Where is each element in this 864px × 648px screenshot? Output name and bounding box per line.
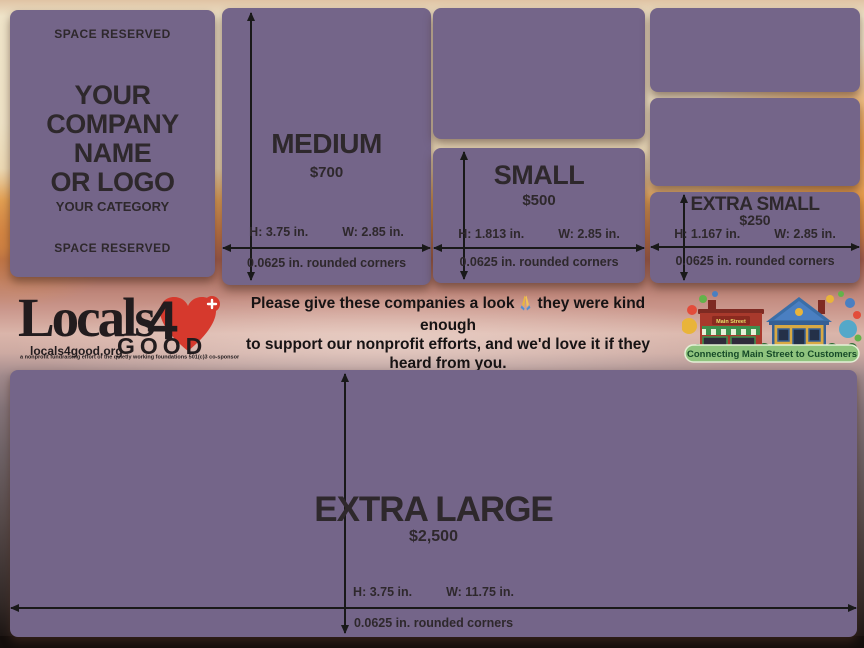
small-dimensions-row: H: 1.813 in. W: 2.85 in. (433, 227, 645, 241)
small-blank-ad-slot (433, 8, 645, 139)
main-street-illustration: Main Street Connecting Ma (682, 288, 862, 366)
extra-small-height-label: H: 1.167 in. (674, 227, 740, 241)
medium-ad-card: MEDIUM $700 H: 3.75 in. W: 2.85 in. 0.06… (222, 8, 431, 285)
background-bottom-strip (0, 636, 864, 648)
message-line-1: Please give these companies a lookthey w… (230, 294, 666, 335)
width-dimension-arrow-icon (651, 246, 859, 248)
extra-large-title: EXTRA LARGE (10, 490, 857, 530)
extra-small-ad-card: EXTRA SMALL $250 H: 1.167 in. W: 2.85 in… (650, 192, 860, 283)
space-reserved-top-label: SPACE RESERVED (54, 27, 171, 41)
company-name-line: YOUR (46, 81, 179, 110)
company-category-label: YOUR CATEGORY (56, 199, 169, 214)
width-dimension-arrow-icon (223, 247, 430, 249)
company-name-line: COMPANY (46, 110, 179, 139)
company-name-line: OR LOGO (46, 168, 179, 197)
medium-price: $700 (222, 164, 431, 181)
main-street-sign-label: Main Street (716, 319, 746, 325)
extra-small-corners-note: 0.0625 in. rounded corners (650, 254, 860, 268)
message-line-2: to support our nonprofit efforts, and we… (230, 335, 666, 373)
extra-large-corners-note: 0.0625 in. rounded corners (10, 616, 857, 630)
extra-large-height-label: H: 3.75 in. (353, 585, 412, 599)
small-title: SMALL (433, 160, 645, 191)
extra-small-blank-ad-slot (650, 98, 860, 186)
medium-width-label: W: 2.85 in. (342, 225, 404, 239)
extra-large-price: $2,500 (10, 528, 857, 546)
space-reserved-bottom-label: SPACE RESERVED (54, 241, 171, 255)
small-height-label: H: 1.813 in. (458, 227, 524, 241)
extra-small-price: $250 (650, 212, 860, 228)
logo-word-good: GOOD (117, 333, 207, 360)
praying-hands-icon (517, 295, 534, 316)
flyer-canvas: SPACE RESERVED YOUR COMPANY NAME OR LOGO… (0, 0, 864, 648)
message-line-1-before: Please give these companies a look (251, 295, 515, 312)
company-logo-slot-card: SPACE RESERVED YOUR COMPANY NAME OR LOGO… (10, 10, 215, 277)
small-width-label: W: 2.85 in. (558, 227, 620, 241)
main-street-logo: Main Street Connecting Ma (682, 288, 862, 371)
small-corners-note: 0.0625 in. rounded corners (433, 255, 645, 269)
main-street-banner-label: Connecting Main Street to Customers (687, 349, 857, 360)
extra-small-blank-ad-slot (650, 8, 860, 92)
extra-large-ad-card: EXTRA LARGE $2,500 H: 3.75 in. W: 11.75 … (10, 370, 857, 637)
medium-title: MEDIUM (222, 128, 431, 160)
company-name-line: NAME (46, 139, 179, 168)
medium-height-label: H: 3.75 in. (249, 225, 308, 239)
extra-small-dimensions-row: H: 1.167 in. W: 2.85 in. (650, 227, 860, 241)
small-price: $500 (433, 192, 645, 209)
extra-large-dimensions-row: H: 3.75 in. W: 11.75 in. (10, 585, 857, 599)
company-card-content: SPACE RESERVED YOUR COMPANY NAME OR LOGO… (10, 10, 215, 277)
width-dimension-arrow-icon (434, 247, 644, 249)
extra-large-width-label: W: 11.75 in. (446, 585, 514, 599)
company-name-placeholder: YOUR COMPANY NAME OR LOGO (46, 81, 179, 197)
medium-dimensions-row: H: 3.75 in. W: 2.85 in. (222, 225, 431, 239)
medium-corners-note: 0.0625 in. rounded corners (222, 256, 431, 270)
small-ad-card: SMALL $500 H: 1.813 in. W: 2.85 in. 0.06… (433, 148, 645, 283)
width-dimension-arrow-icon (11, 607, 856, 609)
extra-small-width-label: W: 2.85 in. (774, 227, 836, 241)
